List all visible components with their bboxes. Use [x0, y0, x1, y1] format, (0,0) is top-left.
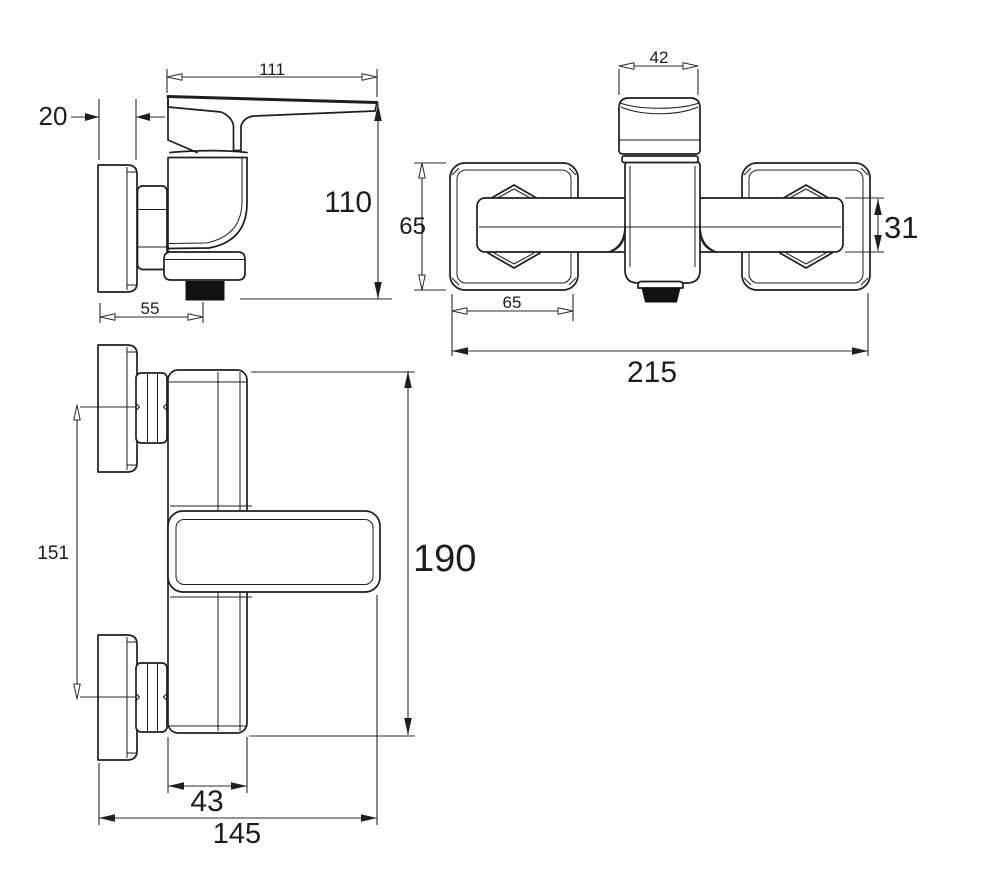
- side-view: 111 20 110 55: [39, 60, 392, 323]
- dim-label-outlet-offset: 55: [141, 299, 160, 318]
- dim-label-spout-length: 111: [259, 60, 285, 79]
- mounting-nut-icon: [138, 186, 168, 270]
- front-view: 151 190 43 145: [37, 345, 476, 850]
- wall-plate-icon: [98, 165, 137, 292]
- dim-label-connection-height: 31: [884, 210, 918, 245]
- dim-label-overall-height: 190: [413, 538, 476, 580]
- dimension-connection-spacing: 151: [37, 405, 136, 699]
- dimension-escutcheon-height: 65: [399, 163, 446, 290]
- dimension-handle-width: 42: [619, 48, 698, 95]
- mounting-nut-upper-icon: [136, 373, 167, 443]
- dim-label-overall-depth: 145: [213, 818, 261, 850]
- dim-label-plate-thickness: 20: [39, 101, 68, 131]
- dim-label-escutcheon-width: 65: [503, 293, 522, 312]
- dim-label-overall-width: 215: [627, 356, 677, 389]
- dim-label-side-height: 110: [324, 186, 372, 219]
- handle-top-icon: [619, 98, 700, 154]
- technical-drawing: 111 20 110 55: [0, 0, 993, 873]
- handle-front-icon: [168, 511, 380, 592]
- water-outlet-icon: [186, 282, 224, 301]
- cartridge-cap-icon: [622, 156, 698, 163]
- dimension-escutcheon-width: 65: [452, 293, 573, 356]
- dim-label-handle-width: 42: [650, 48, 669, 67]
- dimension-plate-thickness: 20: [39, 99, 165, 160]
- mixer-body-icon: [164, 151, 247, 280]
- dim-label-escutcheon-height: 65: [399, 213, 426, 240]
- dimension-spout-length: 111: [167, 60, 377, 97]
- dimension-body-width: 43: [168, 737, 247, 818]
- dimension-connection-height: 31: [845, 198, 918, 252]
- dim-label-body-width: 43: [190, 785, 223, 818]
- water-outlet-top-icon: [638, 282, 683, 303]
- mounting-nut-lower-icon: [136, 663, 167, 732]
- lever-handle-icon: [168, 97, 377, 153]
- dimension-side-height: 110: [240, 104, 392, 299]
- dimension-outlet-offset: 55: [100, 299, 203, 323]
- wall-plate-upper-icon: [98, 345, 137, 472]
- top-view: 42 65 31 65 215: [399, 48, 918, 389]
- technical-drawing-page: 111 20 110 55: [0, 0, 993, 873]
- dim-label-connection-spacing: 151: [37, 543, 69, 564]
